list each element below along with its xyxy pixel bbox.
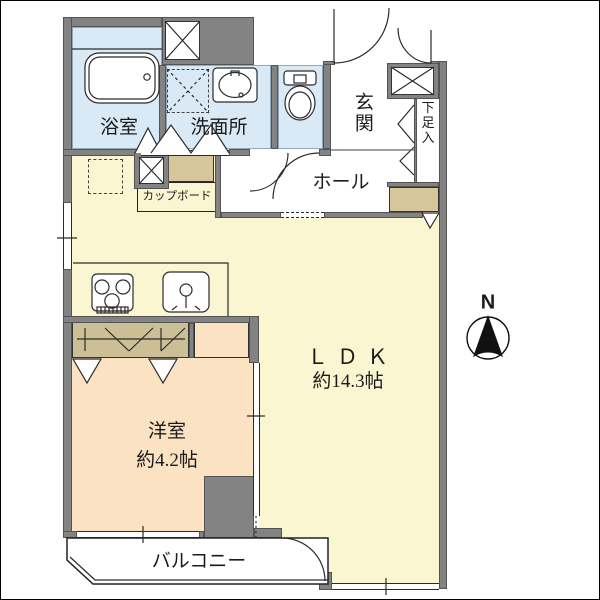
cupboard-counter <box>166 155 214 182</box>
wall-segment <box>254 528 282 538</box>
sliding-door-hall <box>281 212 324 218</box>
storage-box <box>389 187 439 212</box>
window-bedroom-south <box>77 531 199 538</box>
label-compass-north: N <box>481 292 495 315</box>
wall-left-lower <box>63 269 72 538</box>
folding-door-icon <box>398 105 414 143</box>
wall-left-upper <box>63 17 72 203</box>
room-toilet <box>278 65 323 149</box>
entrance-door-arc <box>334 8 389 63</box>
wall-segment <box>414 99 417 183</box>
wall-segment <box>323 63 331 149</box>
wall-hall-bottom <box>324 212 423 218</box>
wall-segment <box>199 531 204 538</box>
compass-arrow-icon <box>473 315 503 357</box>
label-cupboard: カップボード <box>143 190 212 203</box>
wall-segment <box>189 323 194 358</box>
wall-segment <box>229 149 250 156</box>
wall-segment <box>63 531 77 538</box>
pipe-shaft-box <box>165 21 200 60</box>
closet-hanger-box <box>72 321 189 358</box>
sliding-door-bedroom <box>253 363 260 516</box>
washer-pan <box>167 69 209 113</box>
label-ldk: ＬＤＫ <box>307 345 397 369</box>
wall-segment <box>387 182 439 187</box>
wall-segment <box>63 149 141 156</box>
wall-segment <box>323 61 335 65</box>
wall-hall-bottom <box>221 212 281 218</box>
label-entrance: 玄関 <box>351 92 373 134</box>
label-bedroom-size: 約4.2帖 <box>136 450 198 472</box>
wall-pillar-block <box>204 476 254 538</box>
room-ldk <box>329 538 439 584</box>
compass-circle <box>467 317 509 359</box>
label-bedroom: 洋室 <box>148 421 186 443</box>
window-ldk-south <box>332 583 439 590</box>
pillar-shaft-box <box>139 157 164 184</box>
floor-plan: 浴室 洗面所 玄関 下足入 ホール カップボード ＬＤＫ 約14.3帖 洋室 約… <box>0 0 600 600</box>
wall-segment <box>271 65 278 149</box>
label-balcony: バルコニー <box>152 551 247 573</box>
wall-right <box>439 61 447 589</box>
wall-kitchen-bottom <box>63 316 259 323</box>
wall-cupboard-right <box>215 151 221 218</box>
closet-plain-box <box>194 321 249 358</box>
door-sill-washroom <box>141 150 229 156</box>
wall-closet-right <box>249 316 259 363</box>
label-shoe-cabinet: 下足入 <box>419 101 434 146</box>
label-ldk-size: 約14.3帖 <box>312 371 383 393</box>
door-arc <box>250 153 288 191</box>
wall-segment <box>319 149 331 156</box>
refrigerator-space <box>88 159 123 194</box>
label-hall: ホール <box>312 172 369 194</box>
entrance-door-arc <box>398 28 431 63</box>
label-washroom: 洗面所 <box>190 117 247 139</box>
wall-segment <box>159 65 166 149</box>
wall-balcony-post <box>319 572 332 590</box>
pipe-shaft-box <box>391 67 434 95</box>
room-ldk <box>219 218 439 316</box>
window-left <box>63 203 72 269</box>
folding-door-icon <box>400 147 414 175</box>
wall-top <box>63 17 162 27</box>
label-bathroom: 浴室 <box>100 117 138 139</box>
